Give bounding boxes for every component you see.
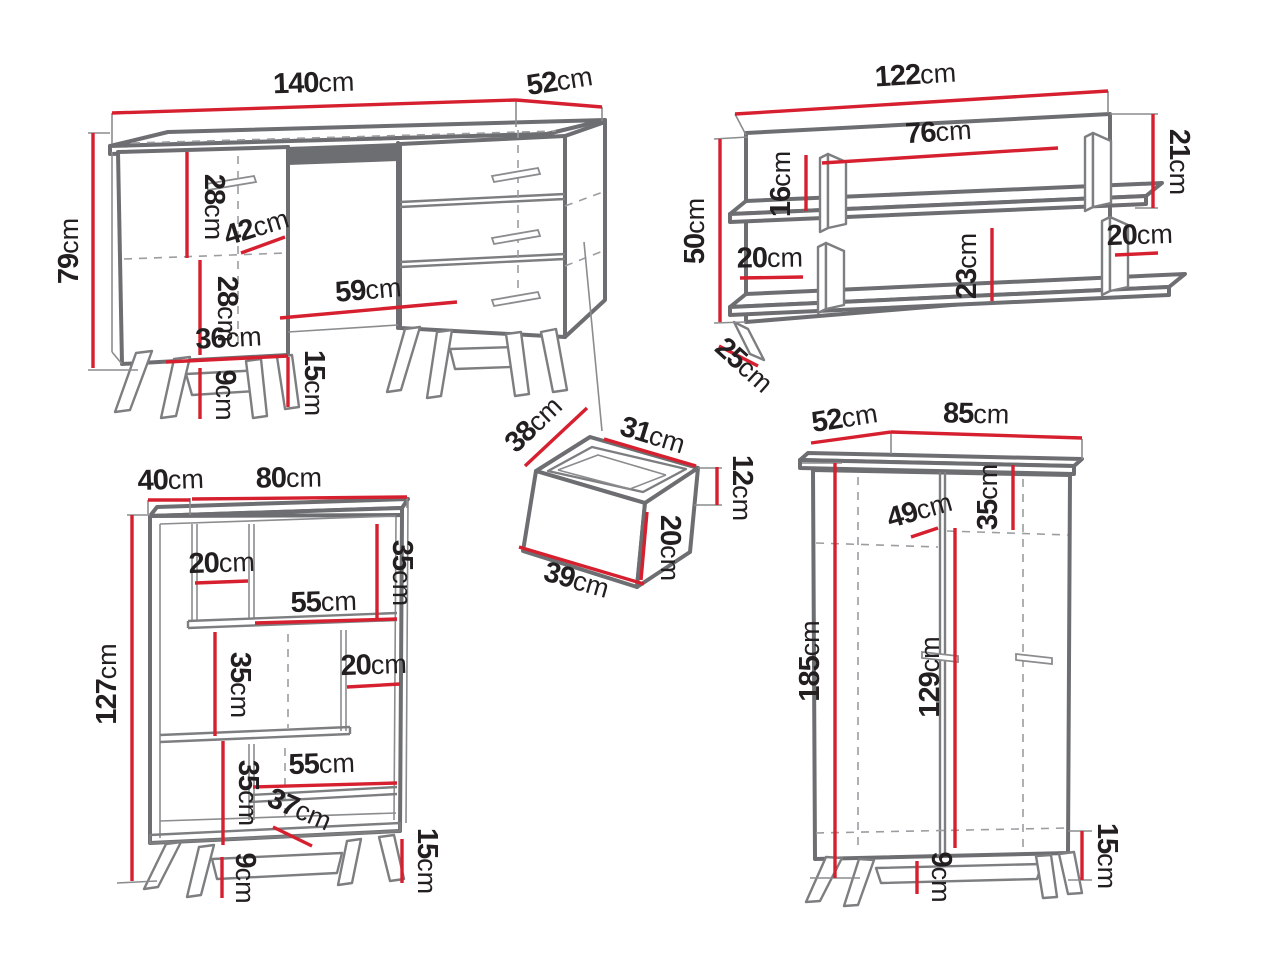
drawer-back-height-label: 12cm — [726, 455, 758, 521]
wardrobe-door-height-label: 129cm — [914, 636, 946, 717]
wardrobe-base-height-label: 15cm — [1091, 823, 1123, 889]
desk-height-label: 79cm — [53, 218, 85, 284]
desk-leg-height-label: 9cm — [209, 369, 241, 420]
bookcase-mid-gap-label: 20cm — [340, 648, 407, 682]
bookcase-leg-height-label: 9cm — [229, 852, 261, 903]
desk-cabinet-width-label: 36cm — [195, 320, 263, 355]
bookcase-top-span-label: 55cm — [290, 585, 357, 619]
bookcase-depth-label: 40cm — [137, 463, 204, 497]
bookcase-base-height-label: 15cm — [411, 828, 443, 894]
bookcase-height-label: 127cm — [91, 643, 123, 724]
drawer-front-height-label: 20cm — [654, 515, 686, 581]
furniture-dimensions-diagram: 140cm 52cm 79cm 28cm 42cm 28cm 59cm 36cm… — [0, 0, 1280, 960]
shelf-right-drop-label: 21cm — [1163, 129, 1195, 195]
shelf-width-label: 122cm — [874, 57, 957, 94]
bookcase-top-gap-label: 20cm — [188, 546, 255, 580]
diagram-canvas: 140cm 52cm 79cm 28cm 42cm 28cm 59cm 36cm… — [0, 0, 1280, 960]
shelf-left-gap-label: 20cm — [736, 241, 803, 274]
shelf-inner-span-label: 76cm — [904, 114, 972, 151]
bookcase-mid-height-label: 35cm — [224, 652, 256, 718]
shelf-divider-height-label: 16cm — [765, 151, 797, 217]
bookcase-width-label: 80cm — [255, 461, 322, 494]
desk-width-label: 140cm — [272, 66, 354, 101]
bookcase-top-height-label: 35cm — [386, 540, 418, 606]
bookcase-low-span-label: 55cm — [288, 747, 355, 781]
desk-base-height-label: 15cm — [298, 350, 330, 416]
wardrobe-leg-height-label: 9cm — [925, 851, 957, 902]
shelf-right-gap-label: 20cm — [1106, 218, 1173, 252]
bookcase-low-height-label: 35cm — [232, 760, 264, 826]
shelf-middle-height-label: 23cm — [951, 233, 983, 299]
wardrobe-width-label: 85cm — [943, 397, 1010, 430]
shelf-height-label: 50cm — [679, 198, 711, 264]
wardrobe-top-shelf-label: 35cm — [972, 464, 1004, 530]
wardrobe-height-label: 185cm — [794, 620, 826, 701]
